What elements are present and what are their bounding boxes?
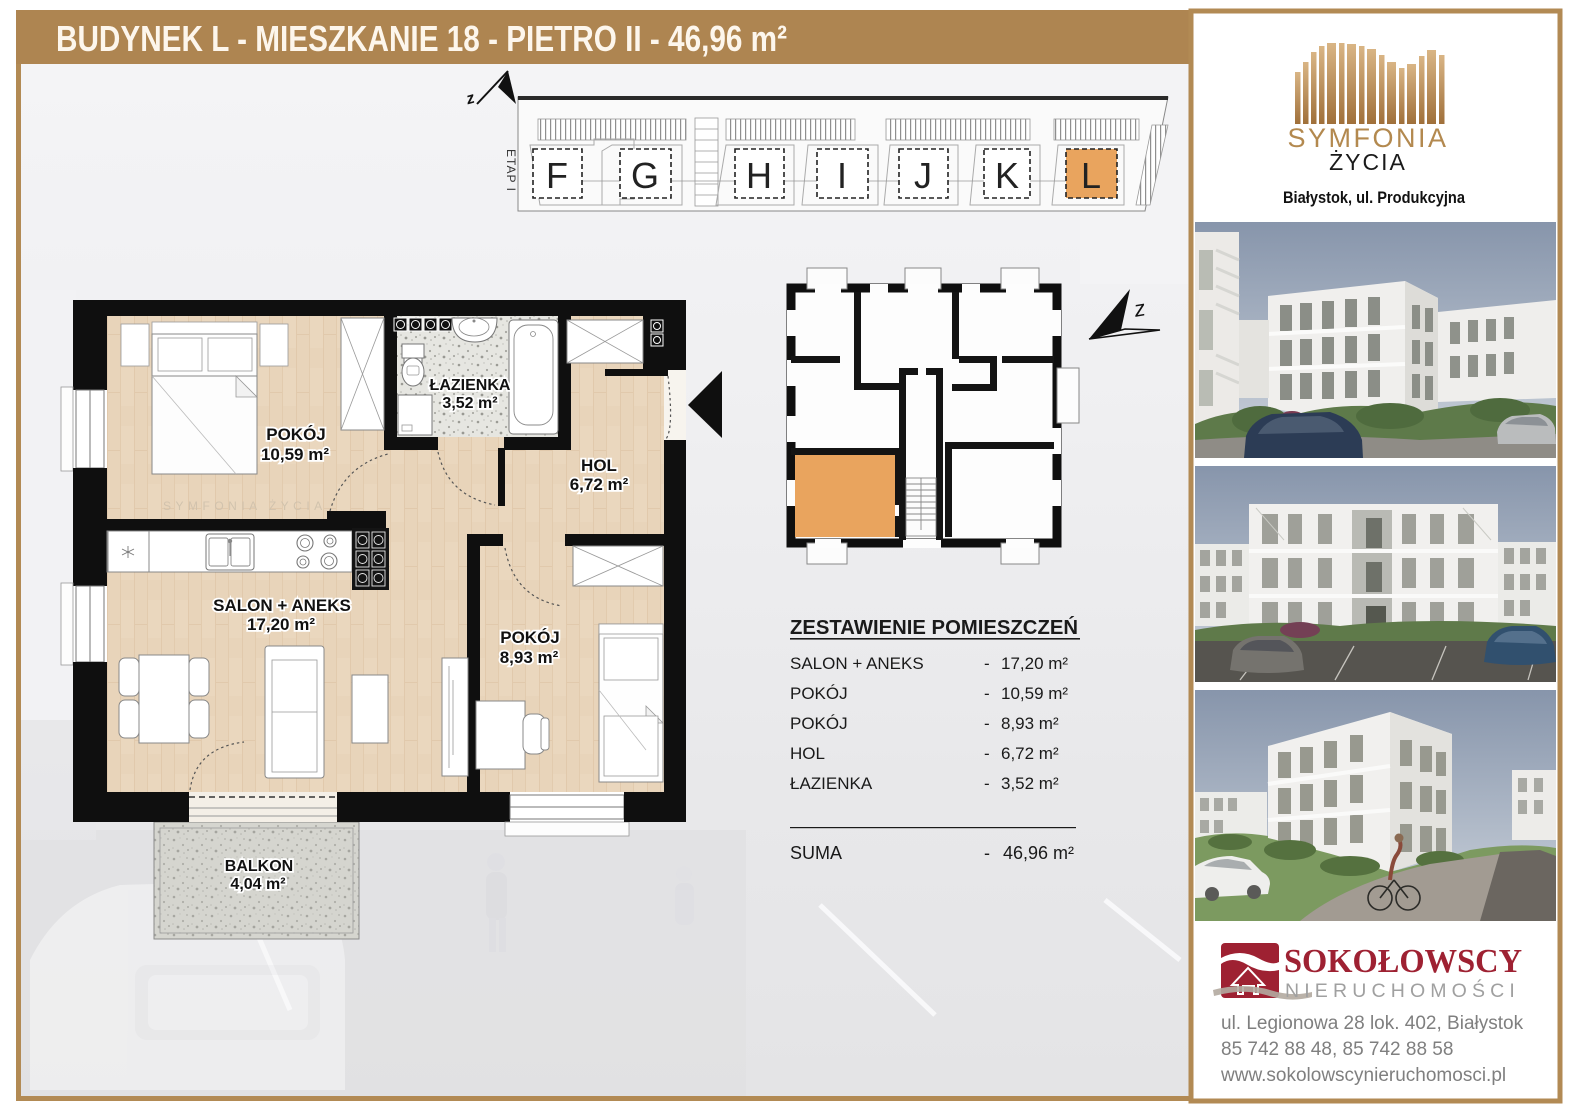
svg-text:SOKOŁOWSCY: SOKOŁOWSCY xyxy=(1284,943,1522,980)
svg-text:I: I xyxy=(837,155,847,196)
svg-text:ŁAZIENKA: ŁAZIENKA xyxy=(430,377,511,394)
svg-text:8,93 m²: 8,93 m² xyxy=(1001,714,1059,733)
svg-text:ETAP I: ETAP I xyxy=(504,149,518,192)
svg-text:H: H xyxy=(746,155,772,196)
svg-text:4,04 m²: 4,04 m² xyxy=(230,876,285,893)
svg-text:85 742 88 48, 85 742 88 58: 85 742 88 48, 85 742 88 58 xyxy=(1221,1039,1453,1060)
svg-text:SALON + ANEKS: SALON + ANEKS xyxy=(213,596,351,615)
svg-text:-: - xyxy=(984,654,990,673)
svg-text:SUMA: SUMA xyxy=(790,843,842,863)
svg-text:-: - xyxy=(984,744,990,763)
svg-text:www.sokolowscynieruchomosci.pl: www.sokolowscynieruchomosci.pl xyxy=(1220,1065,1506,1086)
svg-text:8,93 m²: 8,93 m² xyxy=(500,648,559,667)
svg-text:POKÓJ: POKÓJ xyxy=(790,684,848,703)
svg-text:-: - xyxy=(984,714,990,733)
svg-text:6,72 m²: 6,72 m² xyxy=(1001,744,1059,763)
svg-text:G: G xyxy=(631,155,659,196)
svg-text:ŁAZIENKA: ŁAZIENKA xyxy=(790,774,873,793)
svg-text:SYMFONIA ŻYCIA: SYMFONIA ŻYCIA xyxy=(163,499,327,513)
svg-text:BALKON: BALKON xyxy=(225,858,293,875)
svg-text:F: F xyxy=(546,155,568,196)
svg-text:ŻYCIA: ŻYCIA xyxy=(1329,149,1407,175)
svg-text:Białystok, ul. Produkcyjna: Białystok, ul. Produkcyjna xyxy=(1283,188,1465,207)
svg-text:POKÓJ: POKÓJ xyxy=(266,425,326,444)
svg-text:POKÓJ: POKÓJ xyxy=(500,628,560,647)
svg-text:L: L xyxy=(1081,155,1101,196)
svg-text:-: - xyxy=(984,774,990,793)
svg-text:POKÓJ: POKÓJ xyxy=(790,714,848,733)
svg-text:17,20 m²: 17,20 m² xyxy=(247,615,315,634)
svg-text:HOL: HOL xyxy=(790,744,825,763)
svg-text:NIERUCHOMOŚCI: NIERUCHOMOŚCI xyxy=(1285,980,1520,1002)
svg-text:ZESTAWIENIE POMIESZCZEŃ: ZESTAWIENIE POMIESZCZEŃ xyxy=(790,616,1078,639)
svg-text:K: K xyxy=(995,155,1019,196)
svg-text:-: - xyxy=(984,843,990,863)
svg-text:46,96 m²: 46,96 m² xyxy=(1003,843,1074,863)
svg-text:10,59 m²: 10,59 m² xyxy=(261,445,329,464)
svg-text:6,72 m²: 6,72 m² xyxy=(570,475,629,494)
svg-text:-: - xyxy=(984,684,990,703)
svg-text:17,20 m²: 17,20 m² xyxy=(1001,654,1068,673)
svg-text:BUDYNEK L - MIESZKANIE 18 - PI: BUDYNEK L - MIESZKANIE 18 - PIETRO II - … xyxy=(56,18,787,59)
svg-text:3,52 m²: 3,52 m² xyxy=(1001,774,1059,793)
svg-text:SALON + ANEKS: SALON + ANEKS xyxy=(790,654,924,673)
svg-text:10,59 m²: 10,59 m² xyxy=(1001,684,1068,703)
svg-text:HOL: HOL xyxy=(581,456,617,475)
svg-text:3,52 m²: 3,52 m² xyxy=(442,395,497,412)
svg-text:J: J xyxy=(914,155,932,196)
svg-text:ul. Legionowa 28 lok. 402, Bia: ul. Legionowa 28 lok. 402, Białystok xyxy=(1221,1013,1524,1034)
